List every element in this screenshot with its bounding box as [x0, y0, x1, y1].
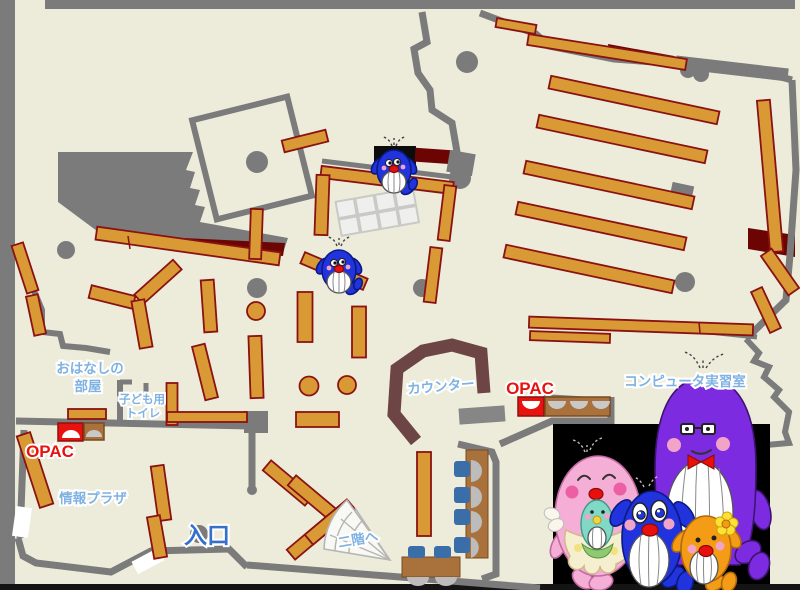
chair — [454, 487, 470, 503]
bookshelf — [352, 307, 366, 358]
bookshelf — [296, 412, 339, 427]
label-computer-room: コンピュータ実習室 — [624, 373, 746, 389]
chair — [454, 537, 470, 553]
label-storytelling-room-line2: 部屋 — [75, 378, 102, 394]
frame-top — [45, 0, 795, 9]
bookshelf — [201, 280, 218, 333]
bookshelf — [68, 409, 106, 419]
baby-green-whale — [581, 500, 613, 558]
label-storytelling-room-line1: おはなしの — [56, 361, 124, 376]
bookshelf — [314, 175, 329, 235]
bookshelf — [417, 452, 431, 536]
opac-terminal-right — [518, 397, 610, 416]
frame-left — [0, 0, 15, 584]
chair — [434, 546, 451, 558]
label-opac-left: OPAC — [26, 442, 74, 461]
chair — [454, 461, 470, 477]
pacifier-icon — [593, 516, 601, 524]
label-opac-right: OPAC — [506, 379, 554, 398]
chair — [408, 546, 425, 558]
label-kids-toilet-line2: トイレ — [126, 407, 161, 420]
counter-bench — [458, 405, 505, 424]
bookshelf — [530, 331, 610, 343]
bookshelf — [298, 292, 313, 342]
dark-red-area — [415, 148, 454, 165]
chair — [454, 509, 470, 525]
bookshelf — [249, 209, 263, 259]
bookshelf — [167, 412, 247, 422]
library-floor-map: おはなしの 部屋 子ども用 トイレ OPAC 情報プラザ 入口 二階へ カウンタ… — [0, 0, 800, 590]
bookshelf — [248, 336, 263, 398]
label-kids-toilet-line1: 子ども用 — [119, 393, 165, 406]
label-info-plaza: 情報プラザ — [59, 490, 127, 506]
reading-table — [402, 557, 460, 577]
floor-map-svg: おはなしの 部屋 子ども用 トイレ OPAC 情報プラザ 入口 二階へ カウンタ… — [0, 0, 800, 590]
opac-terminal-left — [58, 423, 104, 441]
label-entrance: 入口 — [184, 522, 230, 548]
